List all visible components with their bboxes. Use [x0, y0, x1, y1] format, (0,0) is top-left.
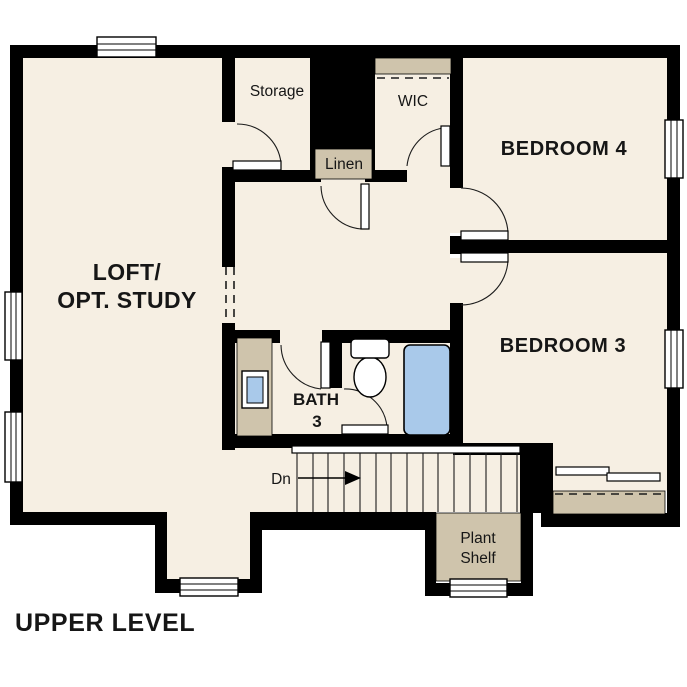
bedroom4-doorway-floor [450, 188, 463, 233]
floorplan-page: LOFT/ OPT. STUDY Storage WIC Linen BEDRO… [0, 0, 687, 687]
storage-label: Storage [250, 83, 304, 100]
wall-segment [10, 512, 167, 525]
wall-segment [450, 58, 463, 188]
loft-floor [23, 58, 228, 512]
window-symbol-bedroom3 [665, 330, 683, 388]
wall-segment [222, 58, 235, 122]
wall-segment [330, 343, 342, 388]
window-symbol-left-upper [5, 292, 22, 360]
plant-shelf-label-line2: Shelf [460, 550, 496, 567]
stair-landing-edge [292, 446, 520, 453]
window-symbol-left-lower [5, 412, 22, 482]
wic-label: WIC [398, 93, 428, 110]
window-symbol-plant-shelf [450, 579, 507, 597]
linen-label: Linen [325, 156, 363, 173]
plant-shelf [436, 513, 521, 581]
wall-segment [458, 240, 680, 253]
window-symbol-top [97, 37, 156, 57]
storage-floor [235, 58, 310, 170]
loft-label: LOFT/ [93, 259, 162, 285]
bedroom4-label: BEDROOM 4 [501, 138, 628, 160]
bedroom3-doorway-floor [450, 258, 463, 303]
window-symbol-bedroom4 [665, 120, 683, 178]
wic-shelf [375, 58, 451, 74]
loft-label-line2: OPT. STUDY [57, 287, 196, 313]
floor-title: UPPER LEVEL [15, 609, 195, 637]
plant-shelf-label: Plant [460, 530, 496, 547]
sink-fixture [242, 371, 268, 408]
stairwell-floor [224, 448, 520, 512]
bath-label-line2: 3 [312, 412, 321, 431]
bathtub-fixture [404, 345, 450, 435]
loft-opening-floor [222, 267, 235, 323]
bedroom3-label: BEDROOM 3 [500, 335, 627, 357]
wall-segment [667, 45, 680, 527]
wall-segment [222, 170, 321, 182]
wall-segment [541, 513, 680, 527]
wall-segment [450, 303, 463, 443]
toilet-fixture [351, 339, 389, 397]
storage-doorway-floor [222, 122, 235, 167]
window-symbol-bump-bottom [180, 578, 238, 596]
wic-floor [375, 70, 450, 170]
wall-segment [250, 512, 430, 530]
wic-doorway-floor [407, 166, 450, 182]
dn-label: Dn [271, 471, 291, 488]
bath-label: BATH [293, 390, 339, 409]
floorplan: LOFT/ OPT. STUDY Storage WIC Linen BEDRO… [0, 0, 687, 687]
loft-bump-floor [167, 512, 250, 579]
